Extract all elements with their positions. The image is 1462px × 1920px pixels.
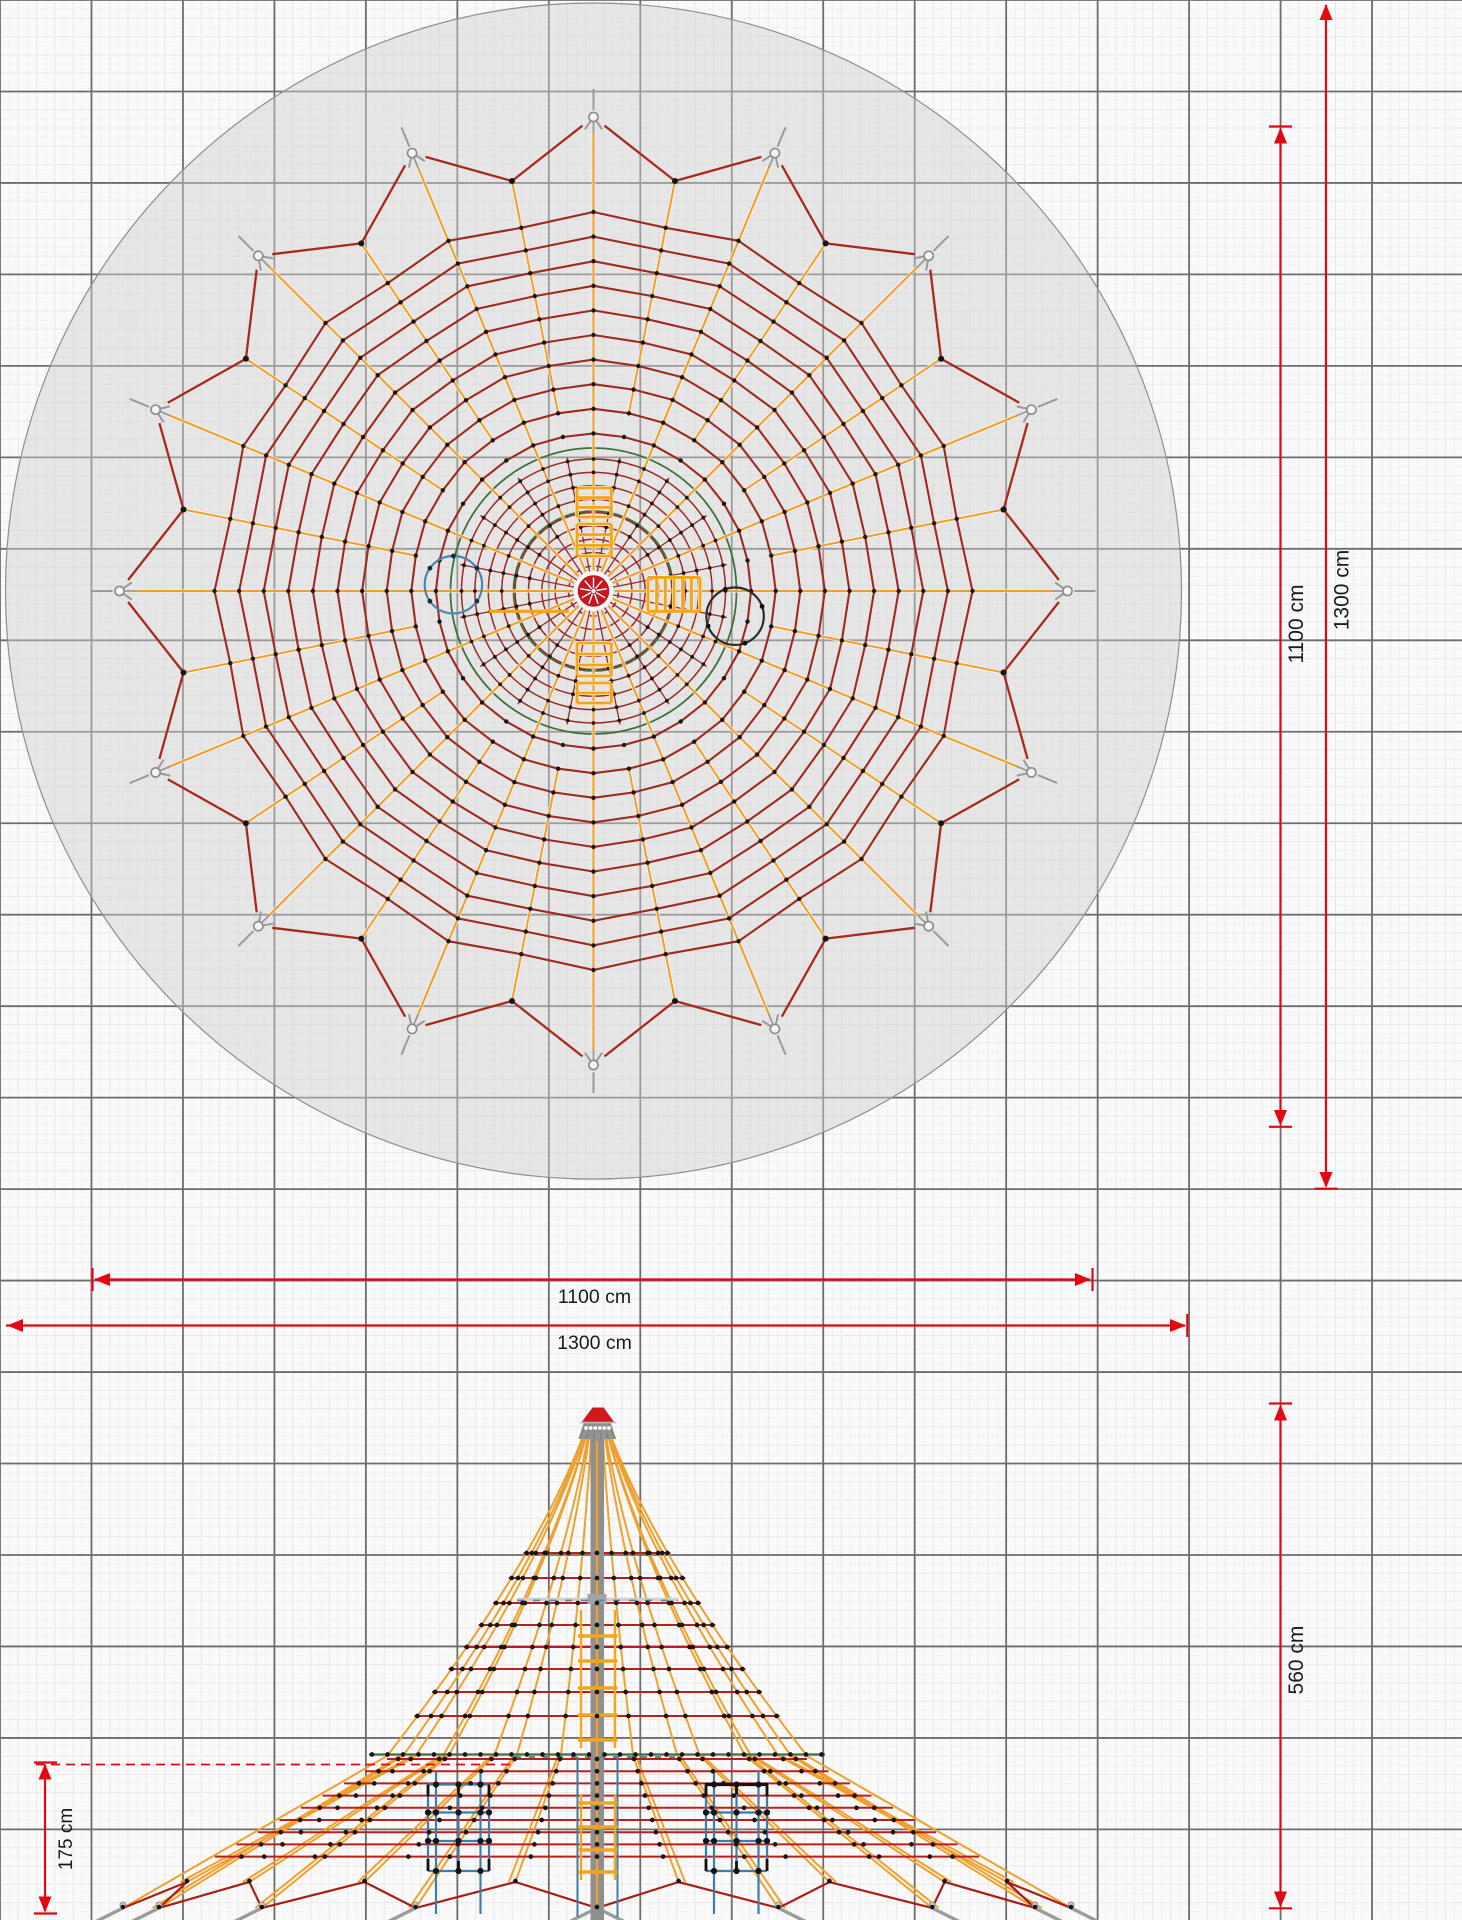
svg-text:1100 cm: 1100 cm bbox=[558, 1286, 631, 1308]
svg-text:1100 cm: 1100 cm bbox=[1285, 585, 1308, 664]
svg-text:1300 cm: 1300 cm bbox=[557, 1332, 632, 1354]
svg-text:560 cm: 560 cm bbox=[1285, 1626, 1308, 1695]
svg-text:175 cm: 175 cm bbox=[56, 1808, 77, 1870]
svg-text:1300 cm: 1300 cm bbox=[1331, 550, 1354, 631]
